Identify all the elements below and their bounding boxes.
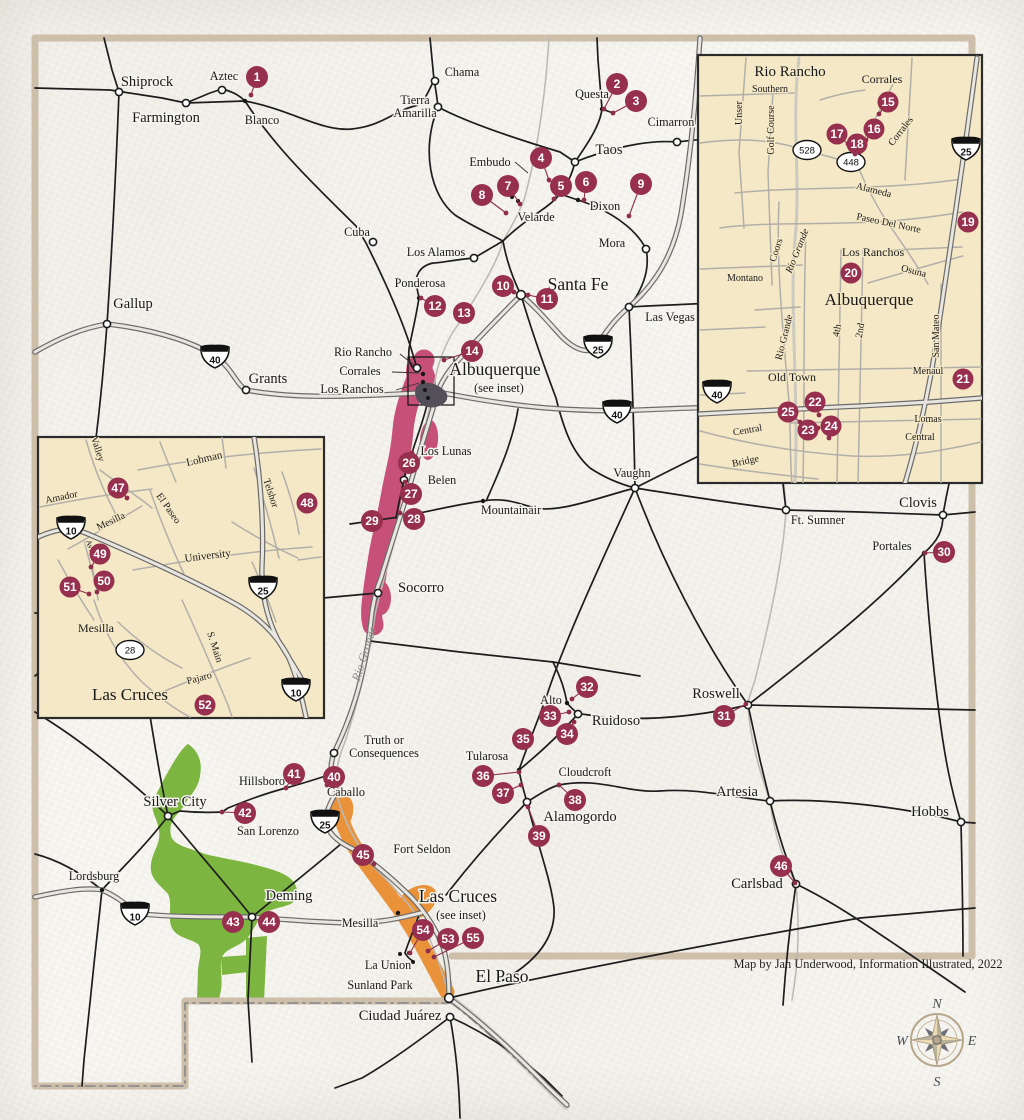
site-dot — [372, 862, 377, 867]
svg-text:41: 41 — [287, 767, 301, 781]
river-label-rio-grande: Rio Grande — [349, 624, 380, 683]
marker-42: 42 — [220, 802, 256, 824]
svg-text:9: 9 — [638, 177, 645, 191]
site-dot — [570, 697, 575, 702]
svg-text:21: 21 — [956, 372, 970, 386]
marker-40: 40 — [323, 766, 345, 788]
city-label: Grants — [249, 371, 288, 387]
svg-text:7: 7 — [505, 179, 512, 193]
svg-text:54: 54 — [416, 923, 430, 937]
city-taos: Taos — [571, 142, 623, 166]
svg-text:53: 53 — [441, 932, 455, 946]
marker-52: 52 — [195, 695, 216, 716]
svg-text:39: 39 — [532, 829, 546, 843]
town-dot — [243, 99, 247, 103]
svg-text:46: 46 — [774, 859, 788, 873]
town-circle — [369, 238, 376, 245]
town-dot — [396, 911, 400, 915]
city-label: Ft. Sumner — [791, 513, 845, 527]
site-dot — [552, 197, 557, 202]
marker-4: 4 — [530, 147, 552, 182]
city-label: Ruidoso — [592, 713, 640, 729]
site-dot — [408, 951, 413, 956]
city-label: Amarilla — [393, 106, 437, 120]
svg-text:23: 23 — [801, 423, 815, 437]
label-unser: Unser — [734, 100, 745, 125]
marker-32: 32 — [570, 676, 598, 701]
city-label: Los Alamos — [407, 245, 466, 259]
svg-text:3: 3 — [633, 94, 640, 108]
marker-29: 29 — [361, 510, 383, 532]
svg-text:25: 25 — [960, 148, 972, 159]
city-label: San Lorenzo — [237, 824, 299, 838]
site-dot — [519, 783, 524, 788]
site-dot — [518, 202, 523, 207]
town-dot — [411, 960, 415, 964]
marker-1: 1 — [246, 66, 268, 97]
town-dot — [100, 888, 104, 892]
city-label: Cuba — [344, 225, 370, 239]
svg-text:12: 12 — [428, 299, 442, 313]
svg-text:44: 44 — [262, 915, 276, 929]
marker-13: 13 — [453, 302, 475, 324]
svg-text:25: 25 — [319, 821, 331, 832]
city-label: La Union — [365, 958, 411, 972]
label-old-town: Old Town — [768, 370, 816, 384]
city-cuba: Cuba — [344, 225, 376, 246]
svg-text:4: 4 — [538, 151, 545, 165]
city-label: Alamogordo — [543, 809, 616, 825]
svg-text:8: 8 — [479, 188, 486, 202]
svg-text:43: 43 — [226, 915, 240, 929]
label-golf-course: Golf Course — [766, 105, 777, 155]
city-chama: Chama — [431, 65, 479, 85]
marker-35: 35 — [512, 728, 534, 750]
town-circle — [574, 710, 581, 717]
albuquerque-inset: Rio RanchoSouthernUnserGolf CourseCorral… — [698, 55, 982, 483]
interstate-shield-25: 25 — [584, 335, 612, 358]
svg-text:49: 49 — [93, 547, 107, 561]
marker-9: 9 — [627, 173, 652, 218]
city-label: Dixon — [590, 199, 620, 213]
city-label: Cloudcroft — [559, 765, 612, 779]
svg-text:6: 6 — [583, 175, 590, 189]
city-label: Socorro — [398, 580, 444, 596]
site-dot — [432, 955, 437, 960]
city-label: Tierra — [400, 93, 430, 107]
svg-text:40: 40 — [209, 356, 221, 367]
town-circle — [374, 589, 381, 596]
town-circle — [330, 749, 337, 756]
site-dot — [526, 293, 531, 298]
label-menaul: Menaul — [913, 366, 944, 377]
svg-text:22: 22 — [808, 395, 822, 409]
town-circle — [413, 364, 420, 371]
town-circle — [523, 798, 530, 805]
city-velarde: Velarde — [517, 210, 554, 224]
svg-text:31: 31 — [717, 709, 731, 723]
site-dot — [87, 592, 92, 597]
svg-text:24: 24 — [824, 419, 838, 433]
city-label: Roswell — [692, 686, 740, 702]
compass-west-label: W — [896, 1034, 909, 1049]
marker-12: 12 — [419, 295, 446, 317]
city-label: Mora — [599, 236, 626, 250]
label-montano: Montano — [727, 273, 763, 284]
city-gallup: Gallup — [103, 296, 152, 328]
site-dot — [817, 413, 822, 418]
marker-43: 43 — [222, 911, 244, 933]
svg-text:40: 40 — [327, 770, 341, 784]
city-label: Hillsboro — [239, 774, 285, 788]
town-circle — [164, 812, 171, 819]
city-tularosa: Tularosa — [466, 749, 521, 772]
interstate-shield-10: 10 — [121, 902, 149, 925]
town-circle — [470, 254, 477, 261]
city-ciudad-ju-rez: Ciudad Juárez — [359, 1008, 454, 1024]
svg-text:28: 28 — [125, 646, 136, 657]
label-mesilla: Mesilla — [78, 621, 115, 635]
interstate-shield-25: 25 — [311, 810, 339, 833]
route-oval-528: 528 — [793, 141, 821, 160]
city-albuquerque: Albuquerque(see inset) — [449, 359, 541, 395]
city-label: Taos — [595, 142, 623, 158]
city-la-union: La Union — [365, 958, 411, 972]
site-dot — [403, 480, 408, 485]
city-label: Velarde — [517, 210, 554, 224]
svg-text:30: 30 — [937, 545, 951, 559]
svg-text:50: 50 — [97, 574, 111, 588]
city-label: Questa — [575, 87, 609, 101]
city-fort-seldon: Fort Seldon — [372, 842, 451, 866]
svg-text:37: 37 — [496, 786, 510, 800]
site-dot — [923, 551, 928, 556]
site-dot — [557, 783, 562, 788]
city-label: Tularosa — [466, 749, 509, 763]
svg-text:34: 34 — [560, 727, 574, 741]
site-dot — [798, 420, 803, 425]
city-label: Embudo — [469, 155, 510, 169]
label-corrales: Corrales — [862, 72, 903, 86]
city-label: Hobbs — [911, 804, 949, 820]
compass-east-label: E — [967, 1034, 977, 1049]
svg-text:5: 5 — [558, 179, 565, 193]
city-blanco: Blanco — [243, 99, 279, 127]
city-label: Ciudad Juárez — [359, 1008, 442, 1024]
see-inset-note: (see inset) — [474, 381, 524, 395]
see-inset-note: (see inset) — [436, 908, 486, 922]
svg-text:27: 27 — [404, 487, 418, 501]
city-tierra-amarilla: TierraAmarilla — [393, 93, 441, 120]
svg-text:55: 55 — [466, 931, 480, 945]
site-dot — [249, 93, 254, 98]
marker-30: 30 — [923, 541, 955, 563]
city-label: Farmington — [132, 110, 200, 126]
site-dot — [744, 702, 749, 707]
city-las-cruces: Las Cruces(see inset) — [419, 886, 497, 922]
town-circle — [673, 138, 680, 145]
town-circle — [957, 818, 964, 825]
site-dot — [442, 358, 447, 363]
city-label: Silver City — [143, 794, 207, 810]
city-sunland-park: Sunland Park — [347, 978, 413, 992]
label-san-mateo: San Mateo — [931, 314, 942, 357]
marker-37: 37 — [492, 782, 523, 804]
city-label: Mesilla — [342, 916, 379, 930]
town-dot — [398, 952, 402, 956]
svg-text:20: 20 — [844, 266, 858, 280]
map-canvas: ShiprockFarmingtonAztecBlancoChamaTierra… — [0, 0, 1024, 1120]
city-label: Lordsburg — [69, 869, 120, 883]
town-circle — [766, 797, 773, 804]
svg-text:35: 35 — [516, 732, 530, 746]
city-portales: Portales — [872, 539, 926, 555]
svg-text:10: 10 — [496, 279, 510, 293]
site-dot — [419, 296, 424, 301]
svg-text:25: 25 — [257, 587, 269, 598]
city-vaughn: Vaughn — [613, 466, 650, 492]
svg-text:40: 40 — [611, 411, 623, 422]
svg-text:47: 47 — [111, 481, 125, 495]
svg-text:26: 26 — [402, 456, 416, 470]
svg-text:32: 32 — [580, 680, 594, 694]
city-label: Truth or — [364, 733, 404, 747]
site-dot — [426, 949, 431, 954]
svg-text:10: 10 — [65, 527, 77, 538]
svg-text:42: 42 — [238, 806, 252, 820]
svg-text:36: 36 — [476, 769, 490, 783]
svg-text:25: 25 — [781, 405, 795, 419]
city-label: Los Lunas — [420, 444, 471, 458]
city-carlsbad: Carlsbad — [731, 876, 799, 892]
site-dot — [547, 178, 552, 183]
marker-21: 21 — [953, 369, 974, 390]
city-label: Clovis — [899, 495, 937, 511]
city-label: Albuquerque — [449, 359, 541, 379]
city-label: Rio Rancho — [334, 345, 392, 359]
svg-text:29: 29 — [365, 514, 379, 528]
city-label: Chama — [445, 65, 480, 79]
marker-19: 19 — [958, 212, 979, 233]
marker-38: 38 — [557, 783, 586, 811]
city-hillsboro: Hillsboro — [239, 774, 288, 790]
city-label: Las Vegas — [645, 310, 695, 324]
city-label: Aztec — [210, 69, 239, 83]
city-label: Artesia — [716, 784, 758, 800]
compass-rose: N E S W — [896, 997, 977, 1090]
label-albuquerque: Albuquerque — [825, 290, 914, 309]
route-oval-448: 448 — [837, 153, 865, 172]
marker-48: 48 — [297, 493, 318, 514]
svg-text:11: 11 — [541, 292, 554, 306]
route-oval-28: 28 — [116, 641, 144, 660]
town-circle — [431, 77, 438, 84]
site-dot — [398, 511, 403, 516]
city-san-lorenzo: San Lorenzo — [237, 824, 299, 838]
svg-text:40: 40 — [711, 391, 723, 402]
compass-south-label: S — [934, 1075, 941, 1090]
new-mexico-wine-map: ShiprockFarmingtonAztecBlancoChamaTierra… — [0, 0, 1024, 1120]
label-lomas: Lomas — [914, 414, 941, 425]
site-dot — [125, 496, 130, 501]
city-label: Carlsbad — [731, 876, 783, 892]
marker-31: 31 — [713, 702, 748, 727]
city-label: Ponderosa — [395, 276, 446, 290]
town-circle — [939, 511, 946, 518]
svg-text:13: 13 — [457, 306, 471, 320]
town-circle — [642, 245, 649, 252]
svg-text:14: 14 — [465, 344, 479, 358]
city-label: Santa Fe — [548, 274, 609, 294]
compass-star-icon — [911, 1014, 963, 1066]
svg-text:528: 528 — [799, 146, 815, 157]
city-label: Las Cruces — [419, 886, 497, 906]
town-circle — [446, 1013, 453, 1020]
svg-text:45: 45 — [356, 848, 370, 862]
svg-text:52: 52 — [198, 698, 212, 712]
site-dot — [220, 810, 225, 815]
town-circle — [103, 320, 110, 327]
city-label: Gallup — [113, 296, 152, 312]
city-embudo: Embudo — [469, 155, 528, 173]
city-label: Mountainair — [481, 503, 541, 517]
site-dot — [567, 710, 572, 715]
svg-text:10: 10 — [129, 913, 141, 924]
town-circle — [248, 913, 255, 920]
svg-text:18: 18 — [850, 137, 864, 151]
city-label: Belen — [428, 473, 456, 487]
city-ruidoso: Ruidoso — [574, 710, 640, 729]
interstate-shield-40: 40 — [603, 400, 631, 423]
site-dot — [95, 590, 100, 595]
city-label: Sunland Park — [347, 978, 413, 992]
svg-text:15: 15 — [881, 95, 895, 109]
city-label: Deming — [266, 888, 313, 904]
svg-text:1: 1 — [254, 70, 261, 84]
site-dot — [877, 112, 882, 117]
town-circle — [625, 303, 632, 310]
marker-20: 20 — [841, 263, 862, 284]
town-circle — [182, 99, 189, 106]
marker-44: 44 — [258, 911, 280, 933]
site-dot — [284, 786, 289, 791]
svg-text:38: 38 — [568, 793, 582, 807]
city-aztec: Aztec — [210, 69, 239, 94]
town-dot — [421, 380, 425, 384]
label-4th: 4th — [831, 323, 844, 337]
marker-34: 34 — [556, 720, 578, 745]
city-farmington: Farmington — [132, 99, 200, 126]
town-circle — [218, 86, 225, 93]
compass-north-label: N — [931, 997, 942, 1012]
city-label: Alto — [540, 693, 562, 707]
svg-text:28: 28 — [407, 512, 421, 526]
svg-text:33: 33 — [543, 709, 557, 723]
site-dot — [526, 805, 531, 810]
svg-text:448: 448 — [843, 158, 859, 169]
city-label: Corrales — [339, 364, 381, 378]
town-dot — [421, 372, 425, 376]
city-label: Blanco — [245, 113, 280, 127]
label-southern: Southern — [752, 84, 788, 95]
svg-text:25: 25 — [592, 346, 604, 357]
svg-text:2: 2 — [614, 77, 621, 91]
svg-text:19: 19 — [961, 215, 975, 229]
town-circle — [571, 158, 578, 165]
town-circle — [631, 484, 638, 491]
town-dot — [423, 388, 427, 392]
marker-7: 7 — [497, 175, 522, 206]
marker-36: 36 — [472, 765, 521, 787]
city-label: El Paso — [476, 966, 529, 986]
town-circle — [782, 506, 789, 513]
region-green — [221, 955, 249, 975]
svg-text:16: 16 — [867, 122, 881, 136]
town-circle — [517, 291, 526, 300]
site-dot — [582, 198, 587, 203]
site-dot — [89, 565, 94, 570]
town-dot — [565, 701, 569, 705]
marker-27: 27 — [400, 480, 422, 505]
site-dot — [627, 214, 632, 219]
city-label: Shiprock — [121, 74, 174, 90]
city-label: Los Ranchos — [320, 382, 384, 396]
city-label: Vaughn — [613, 466, 650, 480]
city-label: Portales — [872, 539, 912, 553]
site-dot — [602, 107, 607, 112]
label-central: Central — [905, 432, 935, 443]
site-dot — [504, 211, 509, 216]
svg-text:10: 10 — [290, 689, 302, 700]
city-label: Fort Seldon — [393, 842, 450, 856]
svg-text:17: 17 — [830, 127, 844, 141]
site-dot — [572, 720, 577, 725]
svg-text:48: 48 — [300, 496, 314, 510]
site-dot — [793, 881, 798, 886]
city-label: Consequences — [349, 746, 419, 760]
label-rio-rancho: Rio Rancho — [754, 64, 825, 80]
town-dot — [426, 396, 430, 400]
town-dot — [576, 198, 580, 202]
las-cruces-inset: ValleyLohmanAmadorEl PaseoMesillaTelshor… — [38, 435, 324, 718]
town-circle — [242, 386, 249, 393]
town-circle — [445, 994, 454, 1003]
marker-45: 45 — [352, 844, 376, 866]
city-mora: Mora — [599, 236, 650, 253]
label-las-cruces: Las Cruces — [92, 685, 168, 704]
svg-text:51: 51 — [63, 580, 77, 594]
site-dot — [611, 111, 616, 116]
city-label: Cimarron — [648, 115, 695, 129]
label-los-ranchos: Los Ranchos — [842, 245, 905, 259]
marker-6: 6 — [575, 171, 597, 202]
site-dot — [517, 770, 522, 775]
attribution: Map by Jan Underwood, Information Illust… — [733, 957, 1002, 971]
